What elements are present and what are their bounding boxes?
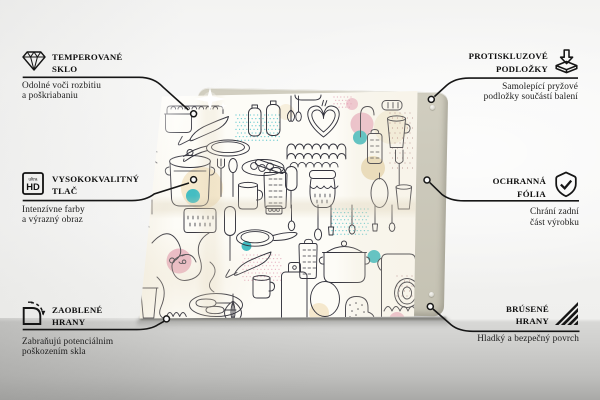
svg-text:HD: HD xyxy=(26,181,40,192)
